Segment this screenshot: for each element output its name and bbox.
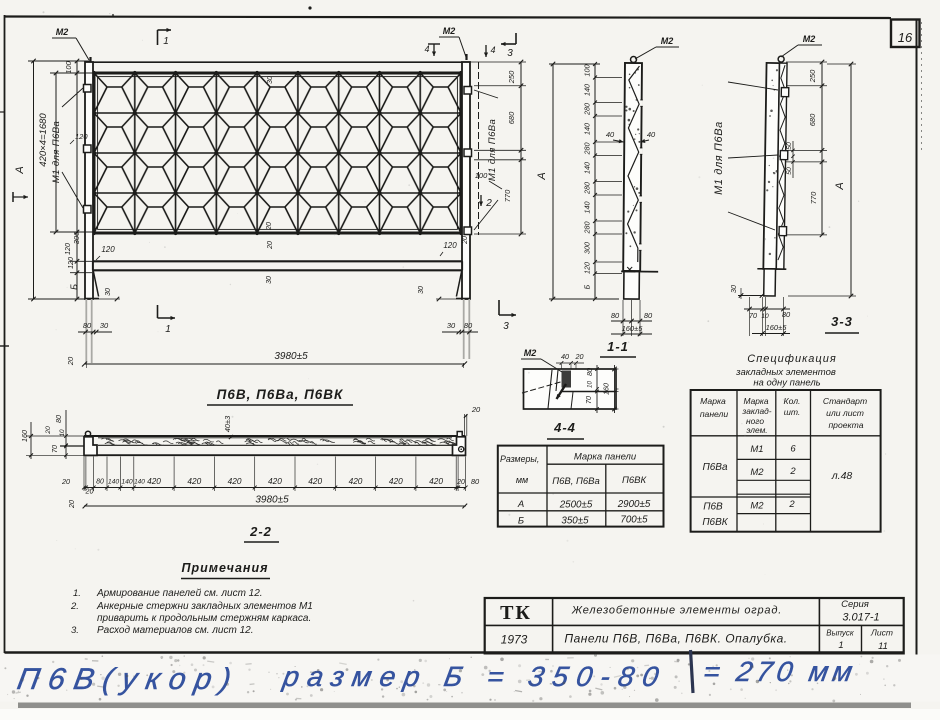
svg-text:3: 3 [507,48,513,59]
svg-text:П6Ва: П6Ва [702,462,727,473]
svg-text:М1 для П6Ва: М1 для П6Ва [713,121,725,195]
svg-text:280: 280 [583,103,592,116]
svg-text:420: 420 [187,476,201,486]
svg-text:Марка: Марка [744,396,769,406]
svg-text:20: 20 [575,352,584,361]
svg-text:А: А [14,166,26,174]
svg-text:1.: 1. [73,588,81,599]
svg-text:160: 160 [20,430,29,442]
svg-text:элем.: элем. [746,425,767,435]
svg-text:Кол.: Кол. [784,396,801,406]
svg-text:30: 30 [267,76,274,84]
svg-text:420: 420 [349,476,363,486]
svg-text:300: 300 [583,242,592,254]
svg-text:770: 770 [503,189,512,202]
svg-text:2: 2 [789,466,796,477]
svg-text:20: 20 [61,477,70,486]
svg-text:280: 280 [583,182,592,195]
svg-text:3980±5: 3980±5 [255,495,289,506]
svg-text:Лист: Лист [870,628,893,638]
svg-text:420: 420 [228,476,242,486]
svg-text:М2: М2 [803,34,816,44]
svg-text:40: 40 [561,352,569,361]
svg-text:10: 10 [59,429,66,437]
svg-text:Армирование панелей см. лис: Армирование панелей см. лист 12. [96,588,263,599]
svg-text:120: 120 [68,257,75,269]
svg-text:М1: М1 [750,444,763,455]
svg-text:160±5: 160±5 [766,323,788,332]
svg-text:1: 1 [838,640,843,651]
svg-text:Б: Б [69,284,79,290]
svg-text:30: 30 [447,321,456,330]
svg-text:2-2: 2-2 [249,524,272,539]
svg-text:2900±5: 2900±5 [617,499,651,510]
svg-text:680: 680 [808,113,817,126]
svg-text:140: 140 [121,479,133,486]
svg-text:закладных элементов: закладных элементов [735,367,836,378]
svg-text:заклад-: заклад- [741,406,771,416]
svg-text:20: 20 [267,241,274,250]
svg-text:П6В, П6Ва: П6В, П6Ва [552,476,600,487]
svg-text:20: 20 [66,356,75,366]
svg-text:140: 140 [583,162,592,174]
svg-text:30: 30 [100,321,109,330]
svg-text:Анкерные стержни закладных: Анкерные стержни закладных элементов М1 [96,601,313,612]
svg-text:панели: панели [700,409,729,419]
svg-text:680: 680 [507,111,516,124]
svg-text:М2: М2 [443,26,456,36]
svg-text:80: 80 [644,311,653,320]
svg-text:770: 770 [809,191,818,204]
svg-text:20: 20 [266,222,273,231]
svg-text:80: 80 [585,368,594,376]
svg-text:М1 для П6Ва: М1 для П6Ва [487,119,498,181]
svg-text:160: 160 [602,383,611,395]
svg-text:Расход материалов см. лист: Расход материалов см. лист 12. [97,625,253,636]
svg-text:Б: Б [583,284,592,289]
svg-text:10: 10 [587,381,594,388]
svg-text:80: 80 [83,321,92,330]
svg-text:80: 80 [782,310,791,319]
svg-text:80: 80 [611,311,620,320]
svg-text:30: 30 [418,286,425,294]
svg-text:2: 2 [788,499,795,510]
svg-text:размер Б = 350-80: размер Б = 350-80 [280,660,670,692]
svg-text:10: 10 [761,313,769,320]
svg-text:Примечания: Примечания [182,561,269,575]
svg-text:М2: М2 [750,467,764,478]
svg-text:420: 420 [308,476,322,486]
svg-text:70: 70 [50,445,59,453]
svg-text:20: 20 [45,426,52,435]
svg-text:приварить к продольным стер: приварить к продольным стержням каркаса. [97,613,311,624]
svg-text:30: 30 [729,285,738,293]
svg-text:П6ВК: П6ВК [702,517,728,528]
svg-text:3-3: 3-3 [831,314,853,329]
svg-text:250: 250 [808,69,817,83]
svg-text:1-1: 1-1 [607,339,629,354]
svg-text:140: 140 [583,84,592,96]
svg-text:30: 30 [105,288,112,296]
svg-text:140: 140 [134,479,145,486]
svg-text:М2: М2 [750,501,764,512]
svg-text:А: А [536,172,548,180]
svg-text:100: 100 [64,60,73,73]
svg-text:М2: М2 [661,36,674,46]
svg-text:50: 50 [786,167,793,175]
svg-text:420: 420 [268,476,282,486]
svg-text:2500±5: 2500±5 [559,500,593,511]
svg-text:20: 20 [471,405,481,414]
svg-text:4: 4 [490,45,495,55]
svg-text:шт.: шт. [784,407,801,417]
svg-text:20: 20 [462,236,469,245]
svg-text:2: 2 [485,198,492,209]
svg-text:Размеры,: Размеры, [500,454,539,464]
svg-text:280: 280 [583,222,592,235]
svg-text:120: 120 [583,262,592,274]
svg-text:1: 1 [163,36,169,47]
svg-text:3.017-1: 3.017-1 [842,612,879,624]
svg-text:П6ВК: П6ВК [622,475,648,486]
svg-text:М2: М2 [524,348,537,358]
svg-text:мм: мм [516,475,528,485]
svg-text:120: 120 [101,245,115,254]
svg-text:2.: 2. [70,601,79,612]
svg-text:Панели П6В, П6Ва, П6ВК. Оп: Панели П6В, П6Ва, П6ВК. Опалубка. [564,632,787,646]
svg-text:Стандарт: Стандарт [823,396,867,406]
svg-text:11: 11 [878,641,888,652]
svg-text:проекта: проекта [828,420,863,430]
svg-text:140: 140 [108,479,120,486]
svg-text:Выпуск: Выпуск [826,629,855,638]
svg-text:50: 50 [786,142,793,150]
svg-text:420×4=1680: 420×4=1680 [38,113,49,167]
svg-text:4-4: 4-4 [553,420,576,435]
svg-text:40: 40 [606,130,615,139]
svg-text:1973: 1973 [501,633,528,647]
svg-text:3.: 3. [71,625,79,636]
svg-text:420: 420 [147,476,161,486]
svg-text:70: 70 [749,311,757,320]
svg-text:3980±5: 3980±5 [274,351,308,362]
svg-text:80: 80 [464,321,473,330]
svg-text:30: 30 [266,276,273,284]
svg-text:140: 140 [583,123,592,135]
svg-text:или лист: или лист [826,408,864,418]
svg-text:А: А [517,499,524,510]
svg-text:80: 80 [471,477,480,486]
svg-text:280: 280 [583,143,592,156]
svg-text:350±5: 350±5 [561,516,589,527]
svg-text:П6В, П6Ва, П6ВК: П6В, П6Ва, П6ВК [217,387,344,402]
svg-text:л.48: л.48 [831,470,853,482]
svg-text:120: 120 [65,243,72,255]
svg-text:700±5: 700±5 [620,515,648,526]
svg-text:4: 4 [424,44,429,54]
svg-text:Спецификация: Спецификация [747,353,836,365]
svg-text:16: 16 [898,30,913,45]
svg-text:120: 120 [75,132,88,141]
svg-text:160±5: 160±5 [622,324,644,333]
svg-text:М1 для П6Ва: М1 для П6Ва [51,121,62,183]
svg-text:420: 420 [429,476,443,486]
svg-text:на одну панель: на одну панель [753,378,820,389]
svg-text:80: 80 [96,479,104,486]
svg-text:120: 120 [443,241,457,250]
svg-text:М2: М2 [56,27,69,37]
svg-text:100: 100 [583,65,592,77]
svg-text:Марка: Марка [700,396,726,406]
svg-text:140: 140 [583,202,592,214]
svg-text:250: 250 [507,70,516,84]
svg-text:300: 300 [72,231,81,244]
svg-text:20: 20 [456,479,465,486]
svg-text:ТК: ТК [500,602,532,624]
svg-text:3: 3 [503,321,509,332]
svg-text:Марка панели: Марка панели [574,452,637,463]
svg-text:= 270 мм: = 270 мм [701,655,860,687]
svg-text:70: 70 [584,396,593,404]
svg-text:А: А [834,182,846,190]
svg-text:Железобетонные элементы огра: Железобетонные элементы оград. [571,605,782,617]
svg-text:П6В: П6В [703,502,723,513]
svg-text:6: 6 [790,444,796,455]
svg-text:20: 20 [67,500,76,509]
svg-text:Б: Б [518,516,524,527]
svg-text:П6В(укор): П6В(укор) [15,663,243,696]
svg-text:40±3: 40±3 [223,415,232,432]
svg-text:40: 40 [647,130,656,139]
svg-text:80: 80 [54,415,63,423]
svg-text:420: 420 [389,476,403,486]
svg-text:1: 1 [165,324,171,335]
svg-text:20: 20 [85,487,94,496]
svg-text:Серия: Серия [841,599,869,610]
